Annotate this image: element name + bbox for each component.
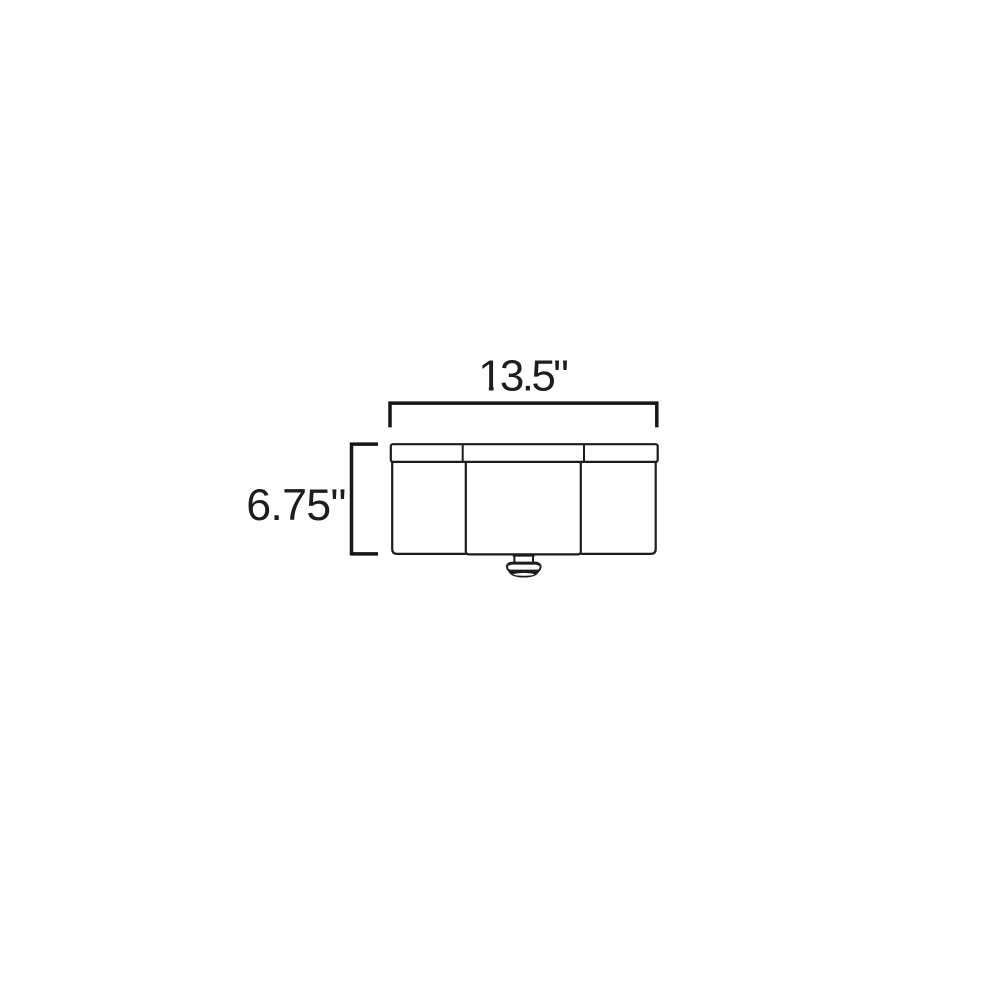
svg-text:13.5": 13.5" bbox=[478, 352, 567, 401]
svg-text:6.75": 6.75" bbox=[246, 480, 345, 530]
